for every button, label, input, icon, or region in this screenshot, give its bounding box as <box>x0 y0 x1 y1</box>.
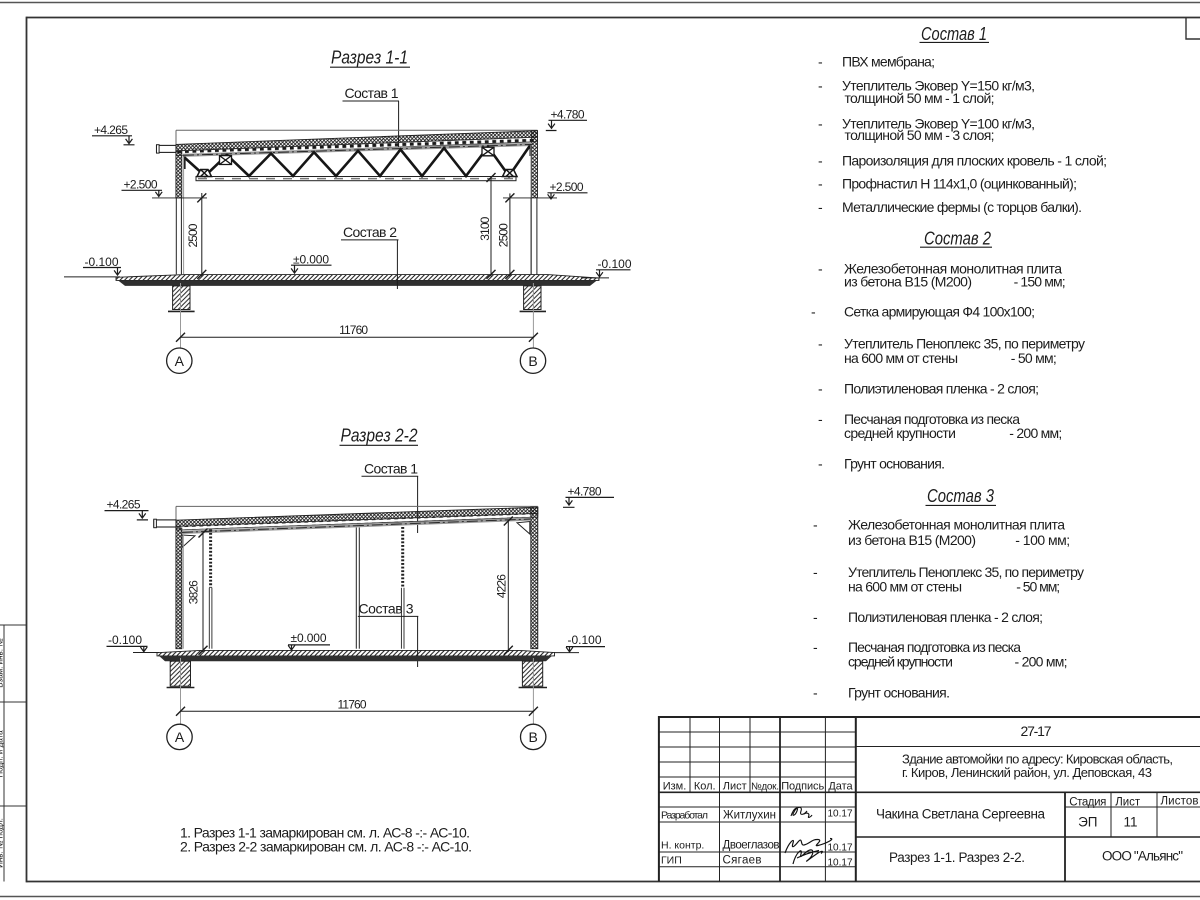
svg-text:11760: 11760 <box>338 698 367 712</box>
svg-text:-: - <box>813 639 818 655</box>
svg-text:Состав 1: Состав 1 <box>345 85 399 101</box>
svg-text:ПВХ мембрана;: ПВХ мембрана; <box>842 54 935 70</box>
svg-text:-: - <box>818 380 823 396</box>
svg-text:ООО "Альянс": ООО "Альянс" <box>1102 848 1183 863</box>
svg-text:Разрез 1-1. Разрез 2-2.: Разрез 1-1. Разрез 2-2. <box>889 850 1025 865</box>
svg-text:Грунт основания.: Грунт основания. <box>848 685 950 701</box>
svg-text:на 600 мм от стены: на 600 мм от стены <box>844 350 958 366</box>
svg-text:10.17: 10.17 <box>827 809 852 820</box>
svg-text:Листов: Листов <box>1161 796 1199 808</box>
svg-text:Подп. и дата: Подп. и дата <box>0 730 5 778</box>
svg-text:10.17: 10.17 <box>827 857 852 868</box>
svg-text:Лист: Лист <box>723 781 747 793</box>
svg-text:Лист: Лист <box>1115 797 1141 809</box>
svg-text:- 150 мм;: - 150 мм; <box>1014 273 1066 289</box>
svg-text:-: - <box>811 303 816 319</box>
svg-text:Песчаная подготовка из песка: Песчаная подготовка из песка <box>848 639 1021 655</box>
svg-text:Житлухин: Житлухин <box>723 810 776 822</box>
svg-text:А: А <box>175 353 185 369</box>
svg-text:+4.780: +4.780 <box>568 484 602 498</box>
svg-text:2500: 2500 <box>186 223 200 247</box>
svg-text:ЭП: ЭП <box>1078 815 1097 830</box>
svg-text:Утеплитель Пеноплекс 35, по пе: Утеплитель Пеноплекс 35, по периметру <box>848 564 1084 580</box>
svg-text:Состав 1: Состав 1 <box>921 24 987 44</box>
svg-text:-0.100: -0.100 <box>85 255 119 269</box>
svg-text:3826: 3826 <box>187 580 201 604</box>
svg-text:+2.500: +2.500 <box>124 178 158 192</box>
svg-text:Сягаев: Сягаев <box>723 854 762 866</box>
svg-text:- 200 мм;: - 200 мм; <box>1009 425 1062 441</box>
svg-text:на 600 мм от стены: на 600 мм от стены <box>848 579 962 595</box>
svg-text:-: - <box>818 152 823 168</box>
svg-text:А: А <box>175 729 185 745</box>
svg-text:-: - <box>818 455 823 471</box>
svg-text:Полиэтиленовая пленка - 2 слоя: Полиэтиленовая пленка - 2 слоя; <box>844 380 1039 396</box>
svg-text:толщиной 50 мм - 3 слоя;: толщиной 50 мм - 3 слоя; <box>845 127 995 143</box>
svg-text:±0.000: ±0.000 <box>291 631 327 645</box>
svg-text:ГИП: ГИП <box>661 854 682 866</box>
svg-text:Состав 3: Состав 3 <box>927 486 994 506</box>
svg-text:толщиной 50 мм - 1 слой;: толщиной 50 мм - 1 слой; <box>845 90 995 106</box>
svg-text:Кол.: Кол. <box>694 781 716 793</box>
svg-text:- 50 мм;: - 50 мм; <box>1011 350 1057 366</box>
svg-text:-: - <box>818 411 823 427</box>
svg-text:-0.100: -0.100 <box>568 633 602 647</box>
svg-text:Подпись: Подпись <box>781 781 824 793</box>
svg-text:2. Разрез 2-2 замаркирован см.: 2. Разрез 2-2 замаркирован см. л. АС-8 -… <box>180 839 472 855</box>
svg-text:Сетка армирующая Ф4 100х100;: Сетка армирующая Ф4 100х100; <box>844 303 1035 319</box>
svg-text:Состав 3: Состав 3 <box>359 601 414 617</box>
svg-text:Стадия: Стадия <box>1069 797 1106 809</box>
svg-text:Чакина Светлана Сергеевна: Чакина Светлана Сергеевна <box>876 807 1045 822</box>
svg-text:-: - <box>818 261 823 277</box>
svg-text:Пароизоляция для плоских крове: Пароизоляция для плоских кровель - 1 сло… <box>842 152 1107 168</box>
svg-text:-: - <box>813 685 818 701</box>
svg-text:-0.100: -0.100 <box>108 633 142 647</box>
svg-text:-: - <box>818 54 823 70</box>
svg-text:-: - <box>818 199 823 215</box>
svg-text:из бетона В15 (М200): из бетона В15 (М200) <box>848 532 976 548</box>
svg-text:27-17: 27-17 <box>1021 723 1052 739</box>
svg-text:-: - <box>813 609 818 625</box>
svg-text:-: - <box>813 517 818 533</box>
svg-text:Двоеглазов: Двоеглазов <box>723 840 780 852</box>
svg-text:11760: 11760 <box>339 323 368 337</box>
svg-text:Грунт основания.: Грунт основания. <box>844 455 945 471</box>
svg-text:- 200 мм;: - 200 мм; <box>1015 654 1068 670</box>
svg-text:2500: 2500 <box>497 223 511 247</box>
svg-text:Металлические фермы (с торцов: Металлические фермы (с торцов балки). <box>842 199 1082 215</box>
svg-text:№док.: №док. <box>751 782 779 793</box>
svg-text:+4.780: +4.780 <box>551 107 585 121</box>
svg-text:Профнастил Н 114х1,0 (оцинкова: Профнастил Н 114х1,0 (оцинкованный); <box>842 176 1077 192</box>
svg-text:-: - <box>818 336 823 352</box>
svg-text:+4.265: +4.265 <box>94 123 128 137</box>
svg-text:10.17: 10.17 <box>827 843 852 854</box>
svg-text:-0.100: -0.100 <box>598 257 632 271</box>
svg-text:+2.500: +2.500 <box>550 180 584 194</box>
svg-text:-: - <box>813 564 818 580</box>
svg-text:Состав 1: Состав 1 <box>364 461 418 477</box>
svg-text:- 50 мм;: - 50 мм; <box>1016 579 1060 595</box>
svg-text:В: В <box>529 729 538 745</box>
svg-text:- 100 мм;: - 100 мм; <box>1015 532 1070 548</box>
svg-text:4226: 4226 <box>495 574 509 598</box>
svg-text:-: - <box>818 115 823 131</box>
svg-text:-: - <box>818 78 823 94</box>
svg-text:Инв. № подл.: Инв. № подл. <box>0 818 5 868</box>
svg-text:В: В <box>528 353 537 369</box>
svg-text:средней крупности: средней крупности <box>848 654 953 670</box>
svg-text:из бетона В15 (М200): из бетона В15 (М200) <box>844 273 972 289</box>
svg-text:Разработал: Разработал <box>661 810 708 822</box>
svg-text:г. Киров, Ленинский район, ул.: г. Киров, Ленинский район, ул. Деповская… <box>902 765 1152 780</box>
svg-text:+4.265: +4.265 <box>107 498 141 512</box>
svg-text:Полиэтиленовая пленка - 2 слоя: Полиэтиленовая пленка - 2 слоя; <box>848 609 1043 625</box>
svg-text:Разрез 1-1: Разрез 1-1 <box>331 48 408 68</box>
svg-text:Состав 2: Состав 2 <box>343 224 397 240</box>
svg-text:-: - <box>818 176 823 192</box>
svg-text:Разрез 2-2: Разрез 2-2 <box>341 426 418 446</box>
svg-text:Взам. инв. №: Взам. инв. № <box>0 638 5 688</box>
svg-text:3100: 3100 <box>478 216 492 240</box>
svg-text:Дата: Дата <box>828 781 853 793</box>
svg-text:11: 11 <box>1123 815 1137 830</box>
svg-text:Состав 2: Состав 2 <box>924 229 991 249</box>
svg-text:±0.000: ±0.000 <box>293 252 329 266</box>
svg-text:Железобетонная монолитная пли: Железобетонная монолитная плита <box>848 517 1065 533</box>
svg-text:средней крупности: средней крупности <box>844 425 956 441</box>
svg-text:Изм.: Изм. <box>663 781 687 793</box>
svg-text:Н. контр.: Н. контр. <box>661 840 704 852</box>
